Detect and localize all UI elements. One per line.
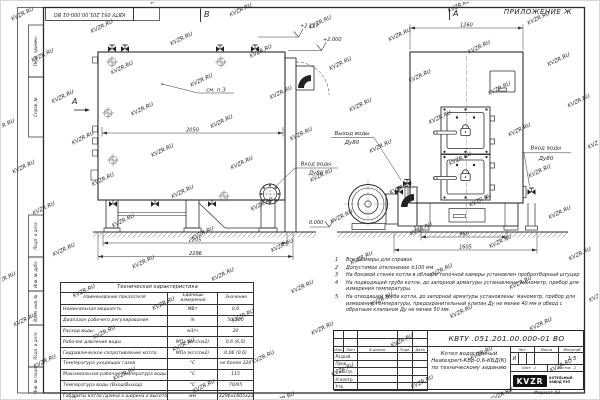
top-stamp-rotated: КВТУ 051.201.00.000-01 ВО <box>54 11 126 17</box>
frame-label: Инв. № дубл. <box>33 260 38 287</box>
section-a-label: А <box>71 97 77 106</box>
dim-front-total: 1605 <box>459 245 472 251</box>
table-row: Максимальная рабочая температура воды°С1… <box>61 369 254 380</box>
note-number: 4 <box>333 280 346 293</box>
tb-cell <box>413 368 428 376</box>
sheets-value: 2 <box>574 366 576 370</box>
note-item: 1Все размеры для справок <box>333 257 584 263</box>
tech-col-header: Наименование показателя <box>61 293 168 305</box>
inlet2-label: Вход воды <box>531 146 562 152</box>
tech-table: Техническая характеристика Наименование … <box>60 282 254 400</box>
frame-label: Инв. № подл. <box>33 366 38 394</box>
sheet-cell: Лист 1 <box>511 365 548 372</box>
param-value: 115 <box>218 369 254 380</box>
tb-cell <box>398 331 413 339</box>
tb-cell <box>344 339 358 347</box>
tb-cell <box>398 383 413 391</box>
table-row: Температура уходящих газов°Сне более 220 <box>61 358 254 369</box>
note-number: 1 <box>333 257 346 263</box>
param-name: Габариты котла (длина х ширина х высота) <box>61 391 168 400</box>
tb-cell <box>344 331 358 339</box>
title-block: КВТУ .051.201.00.000-01 ВО Изм. Лист N д… <box>333 330 584 390</box>
tb-cell <box>358 376 398 384</box>
tb-cell <box>413 376 428 384</box>
sig-row-label: Утв. <box>334 383 358 391</box>
tb-cell <box>358 361 398 369</box>
elevation-zero-label: 0.000 <box>309 220 323 226</box>
note-item: 3На боковой стенке котла в области топоч… <box>333 272 584 278</box>
note-number: 3 <box>333 272 346 278</box>
table-row: Расход водым3/ч20 <box>61 326 254 337</box>
table-row: Рабочее давление водыМПа (кгс/см2)0,6 (6… <box>61 337 254 348</box>
param-name: Температура уходящих газов <box>61 358 168 369</box>
lit-value: И <box>511 353 519 365</box>
tb-cell <box>334 331 344 339</box>
tb-cell <box>334 339 344 347</box>
note-number: 2 <box>333 265 346 271</box>
param-value: не более 220 <box>218 358 254 369</box>
table-row: Номинальная мощностьМВт0,6 <box>61 305 254 316</box>
param-name: Диапазон рабочего регулирования <box>61 315 168 326</box>
frame-label: Подп. и дата <box>33 222 38 250</box>
param-name: Рабочее давление воды <box>61 337 168 348</box>
note-number: 5 <box>333 294 346 313</box>
title-block-right: Лит. Масса Масштаб И 1:5 Лист 1 Листов 2… <box>511 347 585 391</box>
note-item: 5На отводящей трубе котла, до запорной а… <box>333 294 584 313</box>
sig-row-label: Т.контр. <box>334 368 358 376</box>
logo-caption-line: ЗАВОД РЭП <box>549 381 572 385</box>
dim-side-width: 2050 <box>186 128 199 134</box>
outlet-label: Выход воды <box>334 131 370 137</box>
tb-cell <box>413 361 428 369</box>
dim-side-base: 2205 <box>189 238 202 244</box>
tb-cell <box>358 353 398 361</box>
param-unit: МВт <box>168 305 218 316</box>
product-name: Котел водогрейный Heatexpert-КВр-0,6-КБД… <box>428 347 511 391</box>
note-text: На отводящей трубе котла, до запорной ар… <box>346 294 584 313</box>
param-unit: °С <box>168 380 218 391</box>
note-text: На подводящей трубе котла, до запорной а… <box>346 280 584 293</box>
mass-value <box>535 353 559 365</box>
param-unit: МПа (кгс/см2) <box>168 348 218 359</box>
elevation-mid-label: +2.000 <box>323 37 342 43</box>
param-name: Максимальная рабочая температура воды <box>61 369 168 380</box>
tb-cell <box>398 353 413 361</box>
sig-row-label: Пров. <box>334 361 358 369</box>
elevation-top-label: +2.117 <box>300 24 319 30</box>
note-item: 4На подводящей трубе котла, до запорной … <box>333 280 584 293</box>
param-value: 0,06 (0,6) <box>218 348 254 359</box>
tech-col-header: Единицы измерения <box>168 293 218 305</box>
tb-cell <box>527 353 535 365</box>
tb-cell <box>398 376 413 384</box>
param-name: Номинальная мощность <box>61 305 168 316</box>
dim-front-base: 960 <box>459 232 469 238</box>
view-a-label: А <box>452 9 458 18</box>
param-unit: % <box>168 315 218 326</box>
appendix-label: ПРИЛОЖЕНИЕ Ж <box>504 8 572 16</box>
signature-grid: Изм. Лист N докум. Подп. Дата Разраб. Пр… <box>334 347 428 391</box>
param-value: 0,6 (6,0) <box>218 337 254 348</box>
tb-cell <box>519 353 527 365</box>
product-line: Котел водогрейный <box>428 351 510 358</box>
sig-row-label: Разраб. <box>334 353 358 361</box>
param-unit: мм <box>168 391 218 400</box>
tb-cell <box>358 339 398 347</box>
tb-cell <box>413 353 428 361</box>
notes-list: 1Все размеры для справок 2Допустимое отк… <box>333 257 584 315</box>
tech-table-title: Техническая характеристика <box>61 283 254 293</box>
tb-cell <box>398 361 413 369</box>
revision-grid <box>334 331 428 347</box>
frame-label: Перв. примен. <box>33 36 38 66</box>
frame-label: Подп. и дата <box>33 332 38 360</box>
logo-caption: КОТЕЛЬНЫЙ ЗАВОД РЭП <box>547 377 572 384</box>
param-value: 0,6 <box>218 305 254 316</box>
product-line: по техническому заданию <box>428 365 510 372</box>
dim-front-top: 1260 <box>460 23 473 29</box>
inlet-label: Вход воды <box>301 162 332 168</box>
table-row: Температура воды (Вход/Выход)°С70/95 <box>61 380 254 391</box>
param-value: 50-100 <box>218 315 254 326</box>
scale-value: 1:5 <box>559 353 585 365</box>
tb-cell <box>358 331 398 339</box>
param-value: 20 <box>218 326 254 337</box>
note-text: Допустимое отклонение ±100 мм. <box>346 265 584 271</box>
inlet-dn-label: Ду80 <box>308 171 324 177</box>
param-name: Расход воды <box>61 326 168 337</box>
dim-side-total: 2296 <box>189 251 202 257</box>
param-unit: °С <box>168 369 218 380</box>
outlet-dn-label: Ду80 <box>344 140 360 146</box>
format-label: Формат А3 <box>534 391 560 396</box>
note-text: Все размеры для справок <box>346 257 584 263</box>
table-row: Гидравлическое сопротивление котлаМПа (к… <box>61 348 254 359</box>
sheet-label: Лист <box>522 366 531 370</box>
note-text: На боковой стенке котла в области топочн… <box>346 272 584 278</box>
param-name: Температура воды (Вход/Выход) <box>61 380 168 391</box>
frame-label: Справ. № <box>33 97 38 116</box>
product-line: Heatexpert-КВр-0,6-КБД(К) <box>428 358 510 365</box>
tech-col-header: Значение <box>218 293 254 305</box>
sheets-label: Листов <box>557 366 570 370</box>
sig-row-label: Н.контр. <box>334 376 358 384</box>
param-value: 2296х1605х2117 <box>218 391 254 400</box>
tb-cell <box>413 339 428 347</box>
tb-cell <box>358 368 398 376</box>
view-b-label: В <box>204 10 210 19</box>
tb-cell <box>358 383 398 391</box>
drawing-sheet: KVZR.RU Перв. примен. С <box>0 0 600 400</box>
see-note-label: см. п.3 <box>206 88 226 94</box>
tb-cell <box>398 339 413 347</box>
inlet2-dn-label: Ду80 <box>538 156 554 162</box>
tb-cell <box>413 383 428 391</box>
param-unit: МПа (кгс/см2) <box>168 337 218 348</box>
tb-cell <box>398 368 413 376</box>
param-unit: °С <box>168 358 218 369</box>
frame-label: Взам. инв. № <box>33 294 38 321</box>
table-row: Габариты котла (длина х ширина х высота)… <box>61 391 254 400</box>
note-item: 2Допустимое отклонение ±100 мм. <box>333 265 584 271</box>
sheets-cell: Листов 2 <box>548 365 585 372</box>
sheet-value: 1 <box>534 366 536 370</box>
kvzr-logo: KVZR <box>513 375 547 387</box>
param-name: Гидравлическое сопротивление котла <box>61 348 168 359</box>
tb-cell <box>413 331 428 339</box>
table-row: Диапазон рабочего регулирования%50-100 <box>61 315 254 326</box>
param-unit: м3/ч <box>168 326 218 337</box>
param-value: 70/95 <box>218 380 254 391</box>
doc-number: КВТУ .051.201.00.000-01 ВО <box>428 331 585 347</box>
